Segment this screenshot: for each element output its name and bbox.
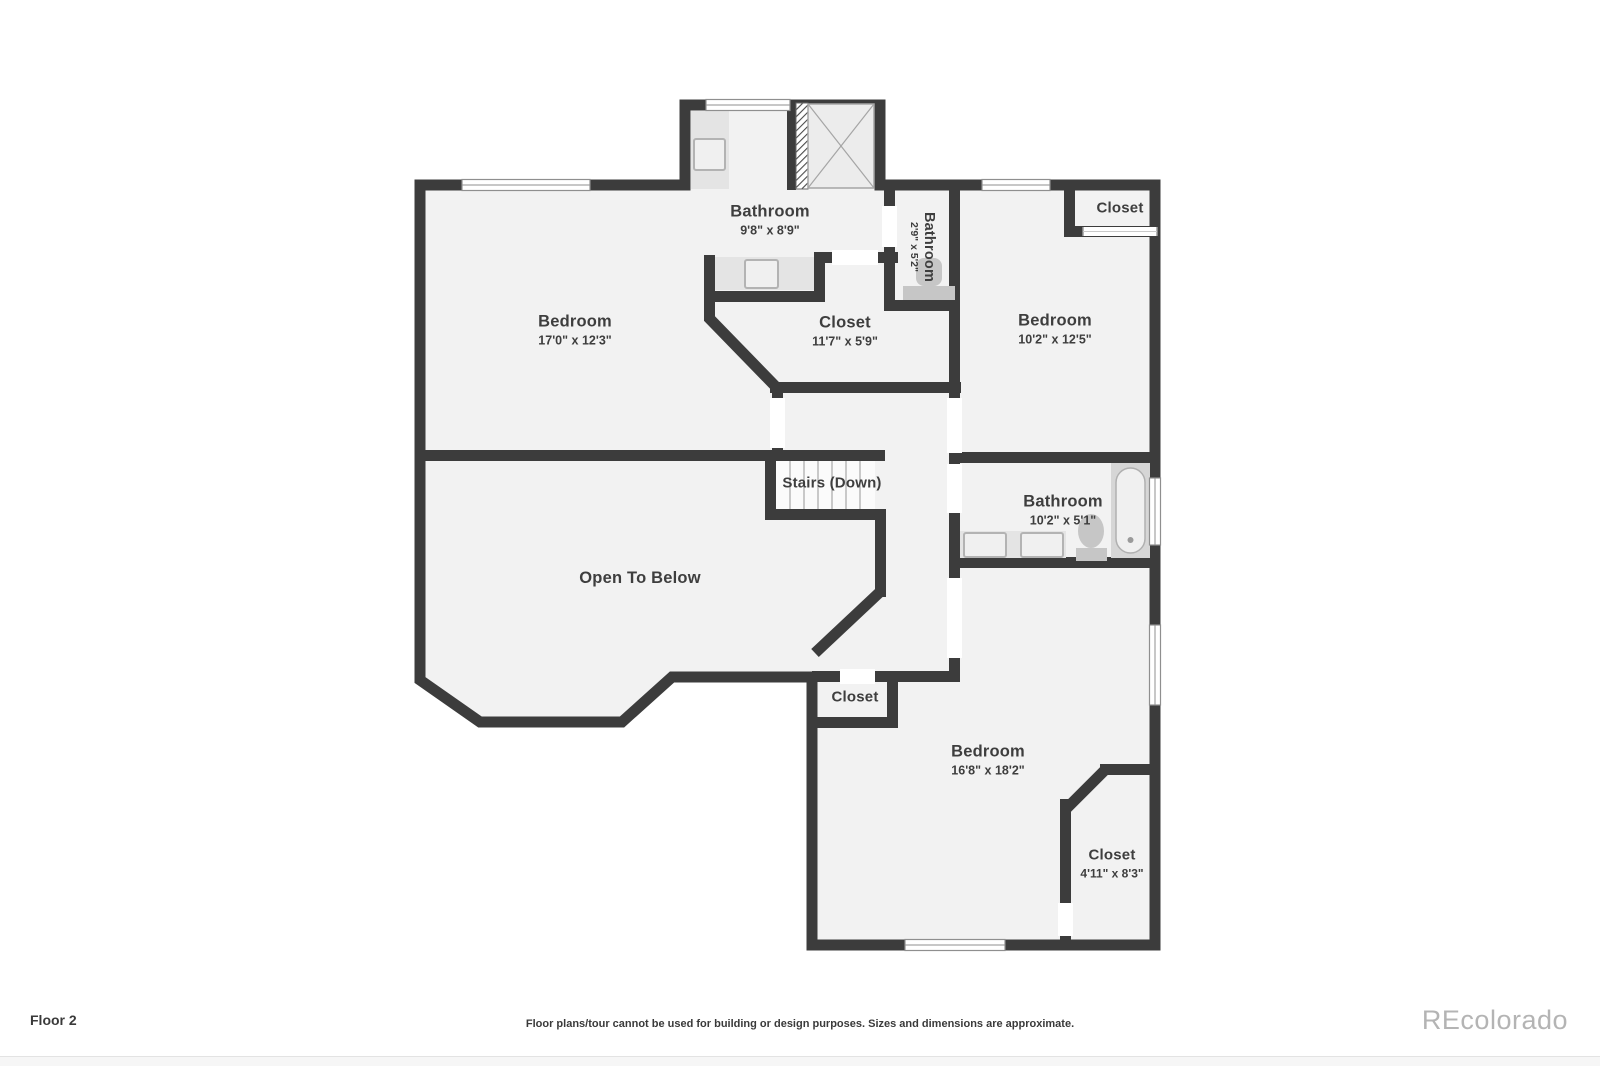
sink-icon [745, 260, 778, 288]
door-toilet-room [882, 206, 897, 247]
room-name: Bathroom [1023, 492, 1103, 510]
room-dims: 11'7" x 5'9" [812, 335, 878, 349]
room-name: Closet [1096, 201, 1143, 218]
room-label-open-to-below: Open To Below [579, 569, 700, 587]
room-dims: 10'2" x 12'5" [1018, 333, 1092, 347]
floor-label: Floor 2 [30, 1012, 77, 1028]
room-name: Open To Below [579, 569, 700, 587]
wall-shower-partition [787, 100, 796, 190]
wall-bedroom-right-bottom [949, 452, 1160, 463]
room-label-closet-hall: Closet [831, 690, 878, 707]
wall-stairs-right [875, 509, 886, 597]
room-label-closet-top-right: Closet [1096, 201, 1143, 218]
brand-logo: REcolorado [1422, 1005, 1568, 1036]
room-label-bedroom-right: Bedroom 10'2" x 12'5" [1018, 311, 1092, 346]
room-label-stairs: Stairs (Down) [782, 476, 881, 493]
room-label-bathroom-small: Bathroom 2'9" x 5'2" [907, 212, 937, 282]
window-icon [462, 180, 590, 191]
wall-closet-top [704, 291, 825, 302]
room-dims: 16'8" x 18'2" [951, 764, 1025, 778]
wall-middle [415, 450, 885, 461]
toilet-tank-icon [1076, 548, 1107, 561]
room-name: Closet [1080, 847, 1143, 864]
room-name: Closet [812, 313, 878, 331]
bathtub-drain [1128, 537, 1134, 543]
room-dims: 2'9" x 5'2" [907, 212, 919, 282]
disclaimer-text: Floor plans/tour cannot be used for buil… [526, 1018, 1074, 1030]
door-closet-br [1058, 903, 1073, 936]
room-dims: 9'8" x 8'9" [730, 224, 810, 238]
door-closet-hall [840, 669, 875, 684]
door-bedroom-bottom [947, 578, 962, 658]
room-dims: 4'11" x 8'3" [1080, 867, 1143, 880]
wall-closet-bottom [770, 382, 961, 393]
window-icon [905, 940, 1005, 951]
door-bedroom-right [947, 398, 962, 453]
room-name: Bathroom [730, 202, 810, 220]
room-name: Stairs (Down) [782, 476, 881, 493]
room-name: Bedroom [1018, 311, 1092, 329]
window-icon [1150, 625, 1161, 705]
room-label-bedroom-bottom: Bedroom 16'8" x 18'2" [951, 742, 1025, 777]
sink-icon [964, 533, 1006, 557]
wall-bathroom-hall-bottom [949, 557, 1160, 568]
wall-toilet-room-bottom [886, 300, 960, 311]
shower-door-icon [796, 103, 808, 189]
room-dims: 10'2" x 5'1" [1023, 514, 1103, 528]
room-dims: 17'0" x 12'3" [538, 334, 612, 348]
floor-plan-drawing [0, 0, 1600, 1066]
door-bedroom-left [770, 398, 785, 448]
room-label-bedroom-left: Bedroom 17'0" x 12'3" [538, 312, 612, 347]
room-name: Bedroom [538, 312, 612, 330]
window-icon [982, 180, 1050, 191]
room-name: Bedroom [951, 742, 1025, 760]
room-label-closet-walkin: Closet 11'7" x 5'9" [812, 313, 878, 348]
footer-divider [0, 1056, 1600, 1066]
room-label-closet-bottom-right: Closet 4'11" x 8'3" [1080, 847, 1143, 880]
window-icon [706, 100, 790, 111]
sink-icon [1021, 533, 1063, 557]
floor-plan-page: Bathroom 9'8" x 8'9" Bathroom 2'9" x 5'2… [0, 0, 1600, 1066]
sink-icon [694, 139, 725, 170]
wall-closet-hall-bottom [807, 717, 898, 728]
door-bathroom-hall [947, 464, 962, 513]
window-icon [1150, 478, 1161, 545]
wall-closet-left [704, 255, 715, 321]
door-closet-tr [1083, 227, 1157, 236]
room-name: Bathroom [921, 212, 937, 282]
wall-stairs-bottom [765, 509, 886, 520]
room-label-bathroom-top: Bathroom 9'8" x 8'9" [730, 202, 810, 237]
toilet-tank-icon [903, 286, 955, 300]
room-label-bathroom-hall: Bathroom 10'2" x 5'1" [1023, 492, 1103, 527]
door-bathroom-closet [832, 250, 878, 265]
room-name: Closet [831, 690, 878, 707]
